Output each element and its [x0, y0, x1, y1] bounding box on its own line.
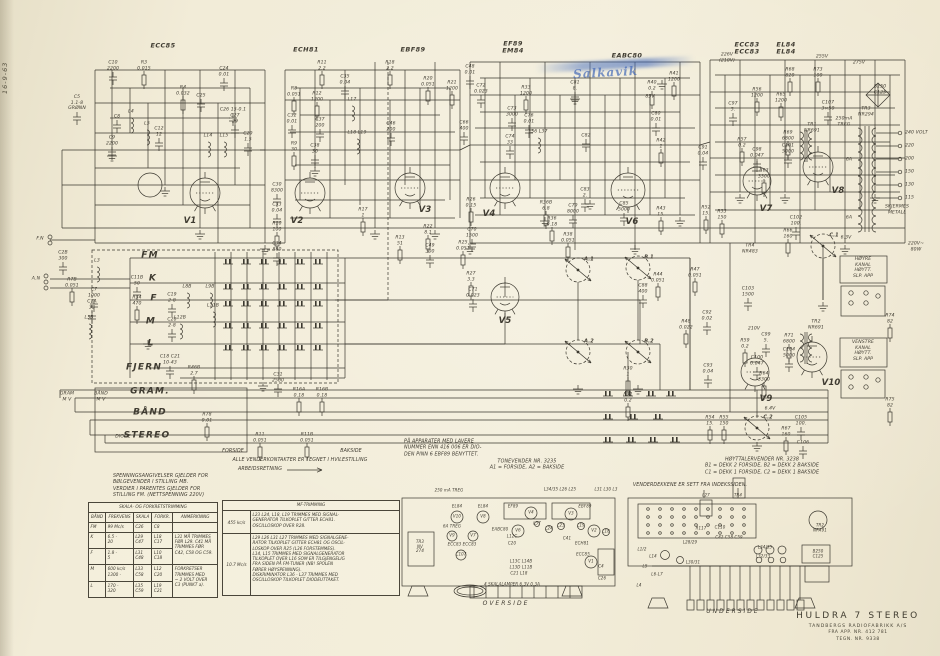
part-label: C99 5.: [761, 333, 770, 344]
part-label: R3 0.015: [137, 61, 151, 72]
mains-tap-label: 220: [905, 143, 914, 149]
part-label: R22 8.1: [423, 225, 432, 236]
chassis-bottom-label: B250 C125: [813, 549, 824, 558]
trim-table: SKALA- OG FORKRETSTRIMMINGBÅNDFREKVENSSK…: [88, 502, 218, 598]
chassis-top-label: L24: [545, 527, 553, 532]
part-label: C73 3000: [506, 107, 518, 118]
part-label: C12 12: [154, 127, 163, 138]
chassis-top-label: EL84: [452, 505, 462, 510]
part-label: R36B 6.8: [540, 201, 553, 212]
part-label: R38 0.051: [561, 233, 575, 244]
power-label: SKJERMES METALL: [885, 205, 909, 216]
wafer-switch-label: B.1: [644, 256, 654, 261]
part-label: L9B: [206, 284, 215, 290]
chassis-top-label: V6: [515, 529, 520, 534]
part-label: R16A 0.18: [293, 388, 306, 399]
chassis-bottom-label: L27: [702, 494, 710, 499]
part-label: R11B 0.051: [300, 433, 314, 444]
chassis-top-label: V10: [453, 515, 461, 520]
part-label: R10 100: [272, 222, 281, 233]
tube-type-label: EBF89: [401, 46, 426, 53]
part-label: C25: [196, 93, 205, 99]
chassis-top-label: L13D L11B: [510, 566, 533, 571]
part-label: 226V (210V): [719, 53, 735, 64]
chassis-top-label: V7: [470, 534, 475, 539]
part-label: A.N: [32, 276, 40, 282]
part-label: R55 150: [719, 416, 728, 427]
mf-table-row: 455 kc/sL23 L24, L18, L19 TRIMMES MED SI…: [223, 511, 400, 534]
part-label: R34 470: [132, 296, 141, 307]
chassis-top-label: L13C L14B: [510, 560, 532, 565]
part-label: R9 30: [291, 142, 297, 153]
dial-lamp-note: 4 SKALALAMPER 6.3V 0.3A: [484, 583, 540, 588]
chassis-top-label: ECC83 ECC83: [448, 543, 477, 548]
mf-trimming-table: MF-TRIMMING455 kc/sL23 L24, L18, L19 TRI…: [222, 500, 400, 596]
part-label: C81 8.: [570, 81, 579, 92]
band-section-label: K: [149, 275, 157, 284]
chassis-bottom-label: L5: [643, 565, 648, 570]
part-label: C76 0.01: [524, 114, 535, 125]
part-label: C34 880: [272, 242, 281, 253]
part-label: R20 0.051: [421, 77, 435, 88]
part-label: C93 0.04: [703, 364, 714, 375]
part-label: R11 2.2: [317, 61, 326, 72]
part-label: L11B: [207, 303, 219, 309]
part-label: F.N: [36, 236, 43, 242]
speaker-box-label: VENSTRE KANAL HØYTT. SLP. APP: [852, 340, 874, 362]
part-label: L14: [204, 133, 213, 139]
tube-designator: V5: [499, 317, 512, 326]
part-label: C35 0.04: [340, 75, 351, 86]
power-label: 6A: [846, 157, 852, 163]
chassis-top-label: V4: [528, 511, 533, 516]
tube-type-label: EABC80: [612, 52, 643, 59]
tube-designator: V6: [626, 218, 639, 227]
chassis-top-label: TR3 NV 274: [416, 540, 424, 554]
part-label: C30 8300: [271, 183, 283, 194]
part-label: R75 82: [885, 398, 894, 409]
part-label: L18 L19: [348, 130, 367, 136]
part-label: C11B 50: [131, 276, 144, 287]
part-label: L5: [144, 121, 150, 127]
part-label: C70 1500: [466, 228, 478, 239]
wafer-switch-label: A.2: [584, 340, 594, 345]
part-label: R56 1200: [751, 88, 763, 99]
part-label: R78 0.01: [202, 413, 213, 424]
chassis-bottom-label: C42 C58 C59: [715, 536, 742, 541]
part-label: C100 0.047: [750, 356, 764, 367]
chassis-top-label: C21 L18: [510, 572, 527, 577]
chassis-top-label: L12C: [507, 535, 518, 540]
part-label: C71 0.023: [466, 288, 480, 299]
mf-table-row: 10.7 Mc/sL29 L26 L31 L27 TRIMMES MED SIG…: [223, 534, 400, 596]
tube-designator: V9: [760, 395, 773, 404]
underside-caption: UNDERSIDE: [706, 609, 759, 615]
part-label: C74 33: [505, 135, 514, 146]
title-block-drawing-no: TEGN. NR. 9338: [778, 637, 938, 643]
mains-tap-label: 130: [905, 182, 914, 188]
part-label: C80 0.01: [651, 112, 662, 123]
mains-tap-label: 115: [905, 195, 914, 201]
part-label: R18 2.2: [385, 61, 394, 72]
part-label: L3: [94, 258, 100, 264]
part-label: R4 0.032: [176, 86, 190, 97]
chassis-top-label: V3: [568, 512, 573, 517]
part-label: R7B 0.051: [65, 278, 79, 289]
part-label: R26 0.15: [466, 198, 477, 209]
part-label: R57 0.2: [737, 138, 746, 149]
part-label: C97 5.: [728, 102, 737, 113]
part-label: R17 1: [358, 208, 367, 219]
chassis-top-label: V2: [591, 529, 596, 534]
chassis-top-label: C41: [563, 537, 571, 542]
part-label: L36 L37: [529, 129, 548, 135]
note-text: TONEVENDER NR. 3235 A1 = FORSIDE, A2 = B…: [490, 460, 564, 473]
part-label: C79 8000: [567, 204, 579, 215]
power-label: 220V~ 80W: [908, 242, 924, 253]
part-label: R74 82: [885, 314, 894, 325]
part-label: R21 1200: [446, 81, 458, 92]
part-label: C29 1.5: [243, 132, 252, 143]
part-label: C38 30: [310, 144, 319, 155]
chassis-bottom-label: C110: [715, 526, 726, 531]
chassis-top-label: V8: [480, 515, 485, 520]
part-label: C24 0.01: [219, 67, 230, 78]
tube-designator: V7: [760, 205, 773, 214]
part-label: C106: [797, 440, 809, 446]
part-label: C49 300: [425, 244, 434, 255]
part-label: C105 100.: [795, 416, 807, 427]
chassis-bottom-label: TR2 NR491: [813, 523, 827, 532]
part-label: R48 0.022: [679, 320, 693, 331]
part-label: R67 160: [781, 427, 790, 438]
part-label: B250 C125: [874, 85, 886, 96]
part-label: C85 5000: [618, 202, 630, 213]
part-label: 255V: [816, 54, 828, 60]
part-label: C31 2500: [272, 373, 284, 384]
part-label: C33 0.04: [272, 203, 283, 214]
part-label: R54 15.: [705, 416, 714, 427]
chassis-top-label: 250 mA TREG: [435, 489, 464, 494]
speaker-box-label: HØYRE KANAL HØYTT. SLP. APP: [853, 257, 873, 279]
chassis-top-label: L23: [557, 524, 565, 529]
chassis-top-label: EF89: [508, 505, 518, 510]
part-label: C66 400: [459, 121, 468, 132]
part-label: TR3 NR294: [858, 107, 874, 118]
note-text: VENDERDEKKENE ER SETT FRA INDEKSSIDEN.: [633, 483, 747, 489]
part-label: C88 400: [638, 284, 647, 295]
tube-type-label: ECC85: [150, 42, 175, 49]
trim-table-col: ANMERKNING: [173, 512, 218, 522]
chassis-bottom-label: L34/35: [758, 546, 772, 551]
chassis-top-label: L31 L30 L3: [595, 488, 618, 493]
part-label: R71 6800: [783, 334, 795, 345]
part-label: R40 0.2: [647, 81, 656, 92]
part-label: R68 820: [785, 68, 794, 79]
part-label: C101 5000: [782, 144, 794, 155]
switch-label: GRAM M V: [60, 392, 74, 403]
tube-type-label: ECH81: [293, 46, 319, 53]
chassis-bottom-label: L28/29: [683, 541, 697, 546]
band-section-label: M: [146, 318, 156, 327]
title-block: HULDRA 7 STEREO TANDBERGS RADIOFABRIKK A…: [778, 610, 938, 643]
part-label: 275V: [853, 60, 865, 66]
tube-type-label: EF89 EM84: [502, 41, 524, 56]
part-label: C9 2200: [106, 136, 118, 147]
tube-type-label: ECC83 ECC83: [734, 42, 759, 57]
part-label: C98 0.047: [750, 148, 764, 159]
chassis-bottom-label: L4: [637, 584, 642, 589]
tube-designator: V2: [291, 217, 304, 226]
part-label: L4: [128, 109, 134, 115]
part-label: 85V: [645, 94, 654, 100]
part-label: C92 0.02: [702, 311, 713, 322]
part-label: C83 2.: [580, 188, 589, 199]
part-label: L3B: [85, 315, 94, 321]
part-label: R30 1: [623, 367, 632, 378]
trim-table-title: SKALA- OG FORKRETSTRIMMING: [89, 503, 218, 513]
mains-tap-label: 240 VOLT: [905, 130, 928, 136]
part-label: C102 100.: [790, 216, 802, 227]
part-label: R69 6800: [782, 131, 794, 142]
chassis-bottom-label: R117: [696, 527, 707, 532]
chassis-top-label: EABC80: [492, 528, 509, 533]
trim-table-col: BÅND: [89, 512, 106, 522]
chassis-bottom-label: L1/2: [637, 548, 646, 553]
part-label: C7A 33: [87, 300, 97, 311]
trim-table-row: FM99 Mc/sC26C8: [89, 522, 218, 532]
part-label: R42 1: [656, 139, 665, 150]
wafer-switch-label: C.1: [829, 234, 838, 239]
part-label: C104 5000: [783, 348, 795, 359]
schematic-sheet: ECC85ECH81EBF89EF89 EM84EABC80ECC83 ECC8…: [0, 0, 940, 656]
part-label: L15: [220, 133, 229, 139]
part-label: C8: [114, 114, 120, 120]
part-label: R59 0.2: [740, 339, 749, 350]
tube-designator: V4: [483, 210, 496, 219]
part-label: C18 C21 10-43: [160, 355, 180, 366]
part-label: C19 2-8: [167, 293, 176, 304]
overside-caption: OVERSIDE: [483, 601, 530, 607]
note-text: PÅ APPARATER MED LAVERE NUMMER ENN 416 0…: [404, 439, 481, 458]
part-label: R41 1200: [668, 72, 680, 83]
chassis-top-label: ECH81: [575, 542, 589, 547]
note-text: ALLE VENDERKONTAKTER ER TEGNET I HVILEST…: [233, 458, 368, 464]
part-label: R46B 2.7: [188, 366, 201, 377]
part-label: R13 51: [395, 236, 404, 247]
part-label: C91 0.04: [698, 146, 709, 157]
part-label: R47 0.051: [688, 268, 702, 279]
tube-designator: V3: [419, 206, 432, 215]
trim-table-row: M600 kc/s 1300 -L33 C58L12 C20FORKRETSER…: [89, 565, 218, 581]
mains-tap-label: 150: [905, 169, 914, 175]
tube-designator: V1: [184, 217, 197, 226]
part-label: R36 0.18: [547, 217, 558, 228]
mf-table-title: MF-TRIMMING: [223, 501, 400, 511]
trim-table-col: FORKR.: [152, 512, 173, 522]
tube-designator: V10: [822, 379, 841, 388]
part-label: R11 0.051: [253, 433, 267, 444]
tube-designator: V8: [832, 187, 845, 196]
part-label: C10 2200: [107, 61, 119, 72]
part-label: R65 1200: [775, 93, 787, 104]
chassis-top-label: EL84: [478, 505, 488, 510]
part-label: C107 3×50: [821, 101, 834, 112]
part-label: R8 0.051: [287, 87, 301, 98]
part-label: R52 15.: [701, 206, 710, 217]
chassis-top-label: C20: [508, 542, 516, 547]
trim-table-row: K6.5 - 20L29 C47L18 C17L31 MÅ TRIMMES FØ…: [89, 532, 218, 548]
part-label: C32 0.01: [287, 114, 298, 125]
part-label: C7 1000: [88, 288, 100, 299]
trim-table-col: SKALA: [133, 512, 152, 522]
chassis-top-label: EBF89: [578, 505, 591, 510]
part-label: R16B 0.18: [316, 388, 329, 399]
band-section-label: GRAM.: [130, 388, 170, 397]
chassis-bottom-label: L14: [649, 555, 657, 560]
chassis-top-label: 6A TREG: [443, 525, 461, 530]
part-label: C103 1500: [742, 287, 754, 298]
part-label: C37 200: [315, 118, 324, 129]
power-label: 6A: [846, 215, 852, 221]
part-label: C27 29: [230, 114, 239, 125]
chassis-bottom-label: L6-L7: [651, 573, 663, 578]
date-note: 16-9-63: [2, 62, 9, 94]
chassis-top-label: ECC85: [576, 553, 590, 558]
part-label: 210V: [748, 326, 760, 332]
part-label: 6.4V: [765, 406, 776, 412]
chassis-top-label: L37: [533, 522, 541, 527]
part-label: R25 0.051: [456, 241, 470, 252]
part-label: R66 160: [783, 229, 792, 240]
part-label: R73 100: [813, 68, 822, 79]
part-label: TR1 NR691: [804, 123, 820, 134]
band-section-label: BÅND: [133, 409, 167, 418]
part-label: R33 1200: [520, 86, 532, 97]
mains-tap-label: 200: [905, 156, 914, 162]
part-label: C5 1.1-8 GRØNN: [68, 95, 86, 112]
part-label: TR4 NR483: [742, 244, 758, 255]
part-label: TR2 NR691: [808, 320, 824, 331]
part-label: R63 3300: [758, 169, 770, 180]
chassis-top-label: C26: [598, 577, 606, 582]
chassis-bottom-label: L32/33: [756, 555, 770, 560]
part-label: C2B 300: [58, 251, 68, 262]
chassis-bottom-label: TR4: [734, 494, 742, 499]
chassis-top-label: L19: [577, 524, 585, 529]
part-label: C72 0.023: [474, 84, 488, 95]
note-text: SPENNINGSANGIVELSER GJELDER FOR BØLGEVEN…: [113, 474, 208, 500]
tube-type-label: EL84 EL84: [776, 42, 795, 57]
power-label: 6.3V: [841, 235, 852, 241]
part-label: R44 0.051: [651, 273, 665, 284]
part-label: C82: [581, 133, 590, 139]
chassis-top-label: C107: [456, 553, 467, 558]
chassis-top-label: L34/35 L26 L25: [544, 488, 576, 493]
part-label: R27 3.3: [466, 272, 475, 283]
part-label: R53 150: [717, 210, 726, 221]
note-text: BAKSIDE: [340, 449, 362, 455]
part-label: C48 0.01: [465, 65, 476, 76]
switch-label: DIODE: [115, 434, 130, 440]
part-label: L12B: [174, 315, 186, 321]
band-section-label: FM: [141, 252, 159, 261]
part-label: R43 15.: [656, 207, 665, 218]
trim-table-col: FREKVENS: [106, 512, 134, 522]
part-label: 250mA TREG: [836, 117, 853, 128]
switch-label: BÅND M V: [94, 392, 108, 403]
part-label: R31 0.2: [623, 393, 632, 404]
note-text: HØYTTALERVENDER NR. 3238 B1 = DEKK 2 FOR…: [705, 457, 819, 476]
part-label: L8B: [183, 284, 192, 290]
wafer-switch-label: B.2: [644, 340, 654, 345]
part-label: L17: [348, 97, 357, 103]
band-section-label: F: [150, 295, 157, 304]
title-block-name: HULDRA 7 STEREO: [778, 610, 938, 624]
chassis-bottom-label: L30/31: [686, 561, 700, 566]
note-text: ARBEIDSRETNING: [238, 467, 282, 473]
note-text: FORSIDE: [222, 449, 244, 455]
chassis-top-label: C4: [598, 565, 604, 570]
part-label: R64 3300: [758, 372, 770, 383]
part-label: R12 1200: [311, 92, 323, 103]
part-label: C46 200: [386, 122, 395, 133]
chassis-top-label: V1: [588, 560, 593, 565]
part-label: C26 15-0.1: [220, 107, 246, 113]
chassis-top-label: L18: [602, 530, 610, 535]
band-section-label: FJERN: [126, 364, 162, 373]
band-section-label: L: [148, 340, 155, 349]
wafer-switch-label: C.2: [763, 416, 772, 421]
wafer-switch-label: A.1: [584, 258, 594, 263]
chassis-top-label: V9: [449, 534, 454, 539]
